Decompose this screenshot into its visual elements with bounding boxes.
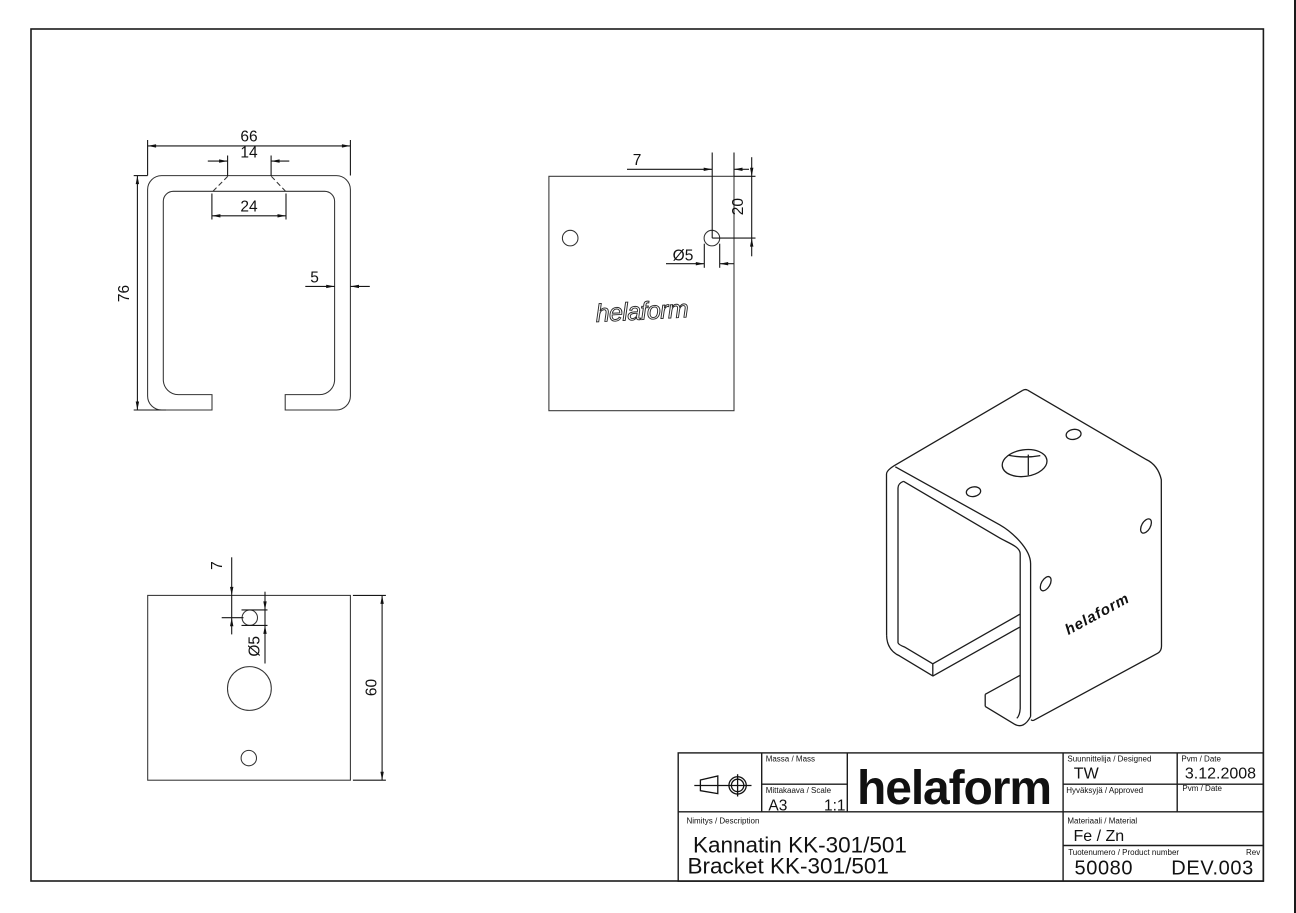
svg-text:7: 7 — [209, 561, 226, 570]
svg-text:helaform: helaform — [595, 295, 689, 328]
svg-text:A3: A3 — [768, 798, 787, 815]
svg-text:Suunnittelija / Designed: Suunnittelija / Designed — [1067, 755, 1151, 764]
svg-text:76: 76 — [116, 285, 133, 302]
svg-text:Pvm / Date: Pvm / Date — [1181, 755, 1221, 764]
svg-text:14: 14 — [240, 145, 258, 162]
svg-text:Hyväksyjä / Approved: Hyväksyjä / Approved — [1066, 786, 1143, 795]
svg-text:60: 60 — [363, 679, 380, 697]
svg-text:Bracket KK-301/501: Bracket KK-301/501 — [688, 854, 889, 879]
svg-text:24: 24 — [240, 199, 258, 216]
svg-text:Ø5: Ø5 — [673, 248, 694, 265]
svg-text:Nimitys / Description: Nimitys / Description — [687, 817, 760, 826]
svg-text:50080: 50080 — [1075, 857, 1133, 879]
svg-text:Pvm / Date: Pvm / Date — [1182, 784, 1222, 793]
svg-text:Massa / Mass: Massa / Mass — [766, 755, 815, 764]
svg-text:Tuotenumero / Product number: Tuotenumero / Product number — [1068, 848, 1179, 857]
svg-text:Materiaali / Material: Materiaali / Material — [1067, 817, 1137, 826]
svg-text:3.12.2008: 3.12.2008 — [1185, 765, 1256, 782]
svg-text:20: 20 — [730, 198, 747, 216]
svg-text:helaform: helaform — [857, 762, 1051, 815]
svg-text:5: 5 — [310, 270, 319, 287]
svg-text:TW: TW — [1074, 765, 1100, 782]
svg-text:Rev: Rev — [1246, 848, 1260, 857]
svg-text:1:1: 1:1 — [824, 798, 846, 815]
svg-text:DEV.003: DEV.003 — [1171, 857, 1253, 879]
svg-text:66: 66 — [240, 129, 257, 146]
svg-text:Mittakaava / Scale: Mittakaava / Scale — [766, 786, 832, 795]
svg-text:Fe / Zn: Fe / Zn — [1074, 828, 1125, 845]
svg-text:Ø5: Ø5 — [247, 636, 264, 657]
svg-text:7: 7 — [633, 152, 642, 169]
